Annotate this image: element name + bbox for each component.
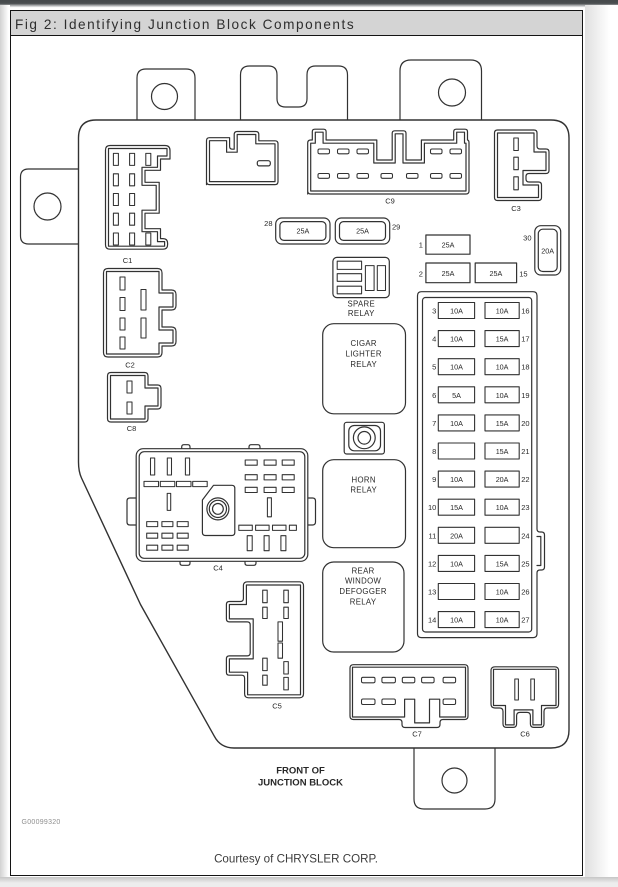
svg-text:5A: 5A [452, 391, 461, 400]
svg-text:17: 17 [521, 335, 529, 344]
svg-text:25A: 25A [356, 227, 369, 236]
svg-text:C6: C6 [520, 730, 530, 739]
svg-text:1: 1 [419, 240, 423, 249]
svg-text:10A: 10A [496, 307, 509, 316]
svg-text:15A: 15A [496, 335, 509, 344]
svg-text:22: 22 [521, 475, 529, 484]
svg-text:25A: 25A [297, 227, 310, 236]
svg-text:25A: 25A [442, 241, 455, 250]
svg-text:25A: 25A [490, 269, 503, 278]
svg-text:4: 4 [432, 335, 436, 344]
svg-text:10A: 10A [450, 559, 463, 568]
svg-text:15A: 15A [496, 419, 509, 428]
svg-text:20: 20 [521, 419, 529, 428]
svg-text:10A: 10A [496, 503, 509, 512]
svg-text:WINDOW: WINDOW [345, 577, 382, 586]
svg-text:10A: 10A [496, 363, 509, 372]
svg-text:CIGAR: CIGAR [350, 339, 376, 348]
svg-text:16: 16 [521, 307, 529, 316]
svg-text:11: 11 [429, 531, 437, 540]
svg-text:HORN: HORN [352, 475, 376, 484]
svg-text:Courtesy of CHRYSLER CORP.: Courtesy of CHRYSLER CORP. [214, 853, 378, 866]
svg-text:8: 8 [432, 447, 436, 456]
svg-text:C8: C8 [127, 424, 137, 433]
svg-text:10A: 10A [450, 307, 463, 316]
svg-text:7: 7 [432, 419, 436, 428]
svg-text:20A: 20A [541, 247, 554, 256]
svg-text:3: 3 [432, 307, 436, 316]
svg-text:10A: 10A [450, 335, 463, 344]
svg-text:10A: 10A [496, 588, 509, 597]
svg-text:LIGHTER: LIGHTER [346, 350, 382, 359]
svg-text:C1: C1 [123, 256, 133, 265]
svg-text:6: 6 [432, 391, 436, 400]
svg-text:19: 19 [521, 391, 529, 400]
svg-text:21: 21 [521, 447, 529, 456]
svg-text:28: 28 [264, 219, 272, 228]
svg-text:20A: 20A [496, 475, 509, 484]
svg-text:25: 25 [521, 559, 529, 568]
svg-text:23: 23 [521, 503, 529, 512]
svg-text:RELAY: RELAY [348, 309, 375, 318]
svg-text:RELAY: RELAY [350, 486, 377, 495]
svg-text:15A: 15A [496, 559, 509, 568]
svg-text:G00099320: G00099320 [22, 819, 61, 826]
svg-text:C2: C2 [125, 361, 135, 370]
svg-text:20A: 20A [450, 531, 463, 540]
svg-text:RELAY: RELAY [350, 360, 377, 369]
svg-text:2: 2 [419, 269, 423, 278]
svg-text:10A: 10A [496, 391, 509, 400]
svg-text:C3: C3 [511, 204, 521, 213]
svg-text:C9: C9 [385, 197, 395, 206]
svg-text:C5: C5 [272, 702, 282, 711]
svg-text:DEFOGGER: DEFOGGER [339, 587, 386, 596]
svg-text:26: 26 [521, 588, 529, 597]
svg-text:10: 10 [428, 503, 436, 512]
svg-text:SPARE: SPARE [347, 299, 375, 308]
svg-text:25A: 25A [442, 269, 455, 278]
svg-text:30: 30 [523, 233, 531, 242]
svg-text:9: 9 [432, 475, 436, 484]
svg-text:RELAY: RELAY [350, 597, 377, 606]
svg-text:10A: 10A [450, 419, 463, 428]
svg-text:15A: 15A [496, 447, 509, 456]
svg-text:10A: 10A [450, 475, 463, 484]
svg-text:C7: C7 [412, 730, 422, 739]
svg-text:C4: C4 [213, 564, 223, 573]
svg-text:5: 5 [432, 363, 436, 372]
svg-text:29: 29 [392, 223, 400, 232]
svg-text:12: 12 [428, 559, 436, 568]
svg-text:FRONT OF: FRONT OF [276, 766, 325, 777]
svg-text:JUNCTION BLOCK: JUNCTION BLOCK [258, 777, 343, 788]
svg-text:27: 27 [521, 616, 529, 625]
svg-text:15: 15 [519, 269, 527, 278]
svg-text:15A: 15A [450, 503, 463, 512]
svg-text:10A: 10A [496, 616, 509, 625]
svg-text:24: 24 [521, 531, 529, 540]
svg-text:13: 13 [428, 588, 436, 597]
svg-text:18: 18 [521, 363, 529, 372]
svg-text:REAR: REAR [352, 566, 375, 575]
svg-text:14: 14 [428, 616, 436, 625]
svg-text:10A: 10A [450, 616, 463, 625]
svg-text:10A: 10A [450, 363, 463, 372]
